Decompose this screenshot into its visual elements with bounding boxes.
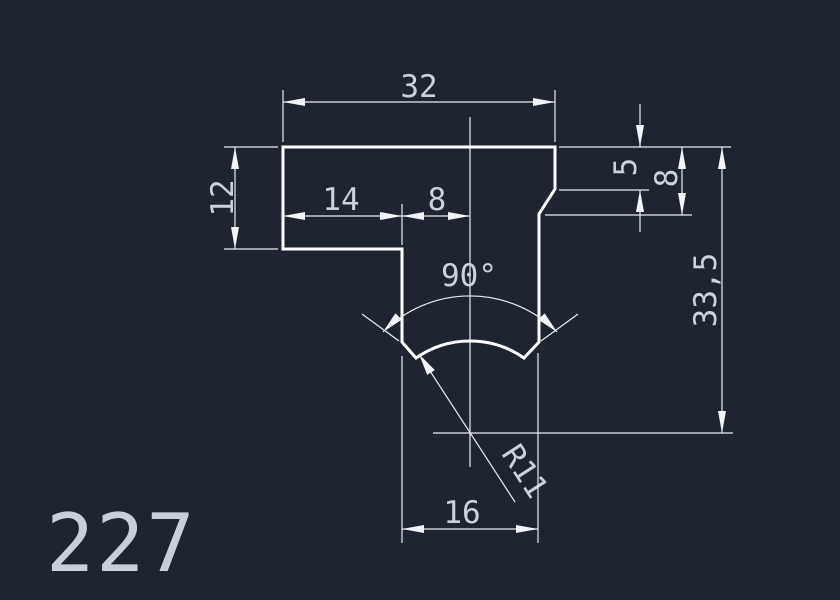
- dim-text-14: 14: [322, 182, 359, 218]
- dim-text-90deg: 90°: [441, 258, 497, 294]
- dim-text-8-right: 8: [649, 169, 685, 188]
- dim-text-16: 16: [443, 495, 480, 531]
- drawing-svg: 32 12 14 8 5 8: [0, 0, 840, 600]
- dim-text-5: 5: [608, 158, 644, 177]
- dim-text-32: 32: [400, 69, 437, 105]
- drawing-number: 227: [46, 497, 197, 590]
- dim-text-8-top: 8: [428, 182, 447, 218]
- dim-text-12: 12: [205, 179, 241, 216]
- cad-canvas: 32 12 14 8 5 8: [0, 0, 840, 600]
- dim-text-33-5: 33,5: [688, 253, 724, 328]
